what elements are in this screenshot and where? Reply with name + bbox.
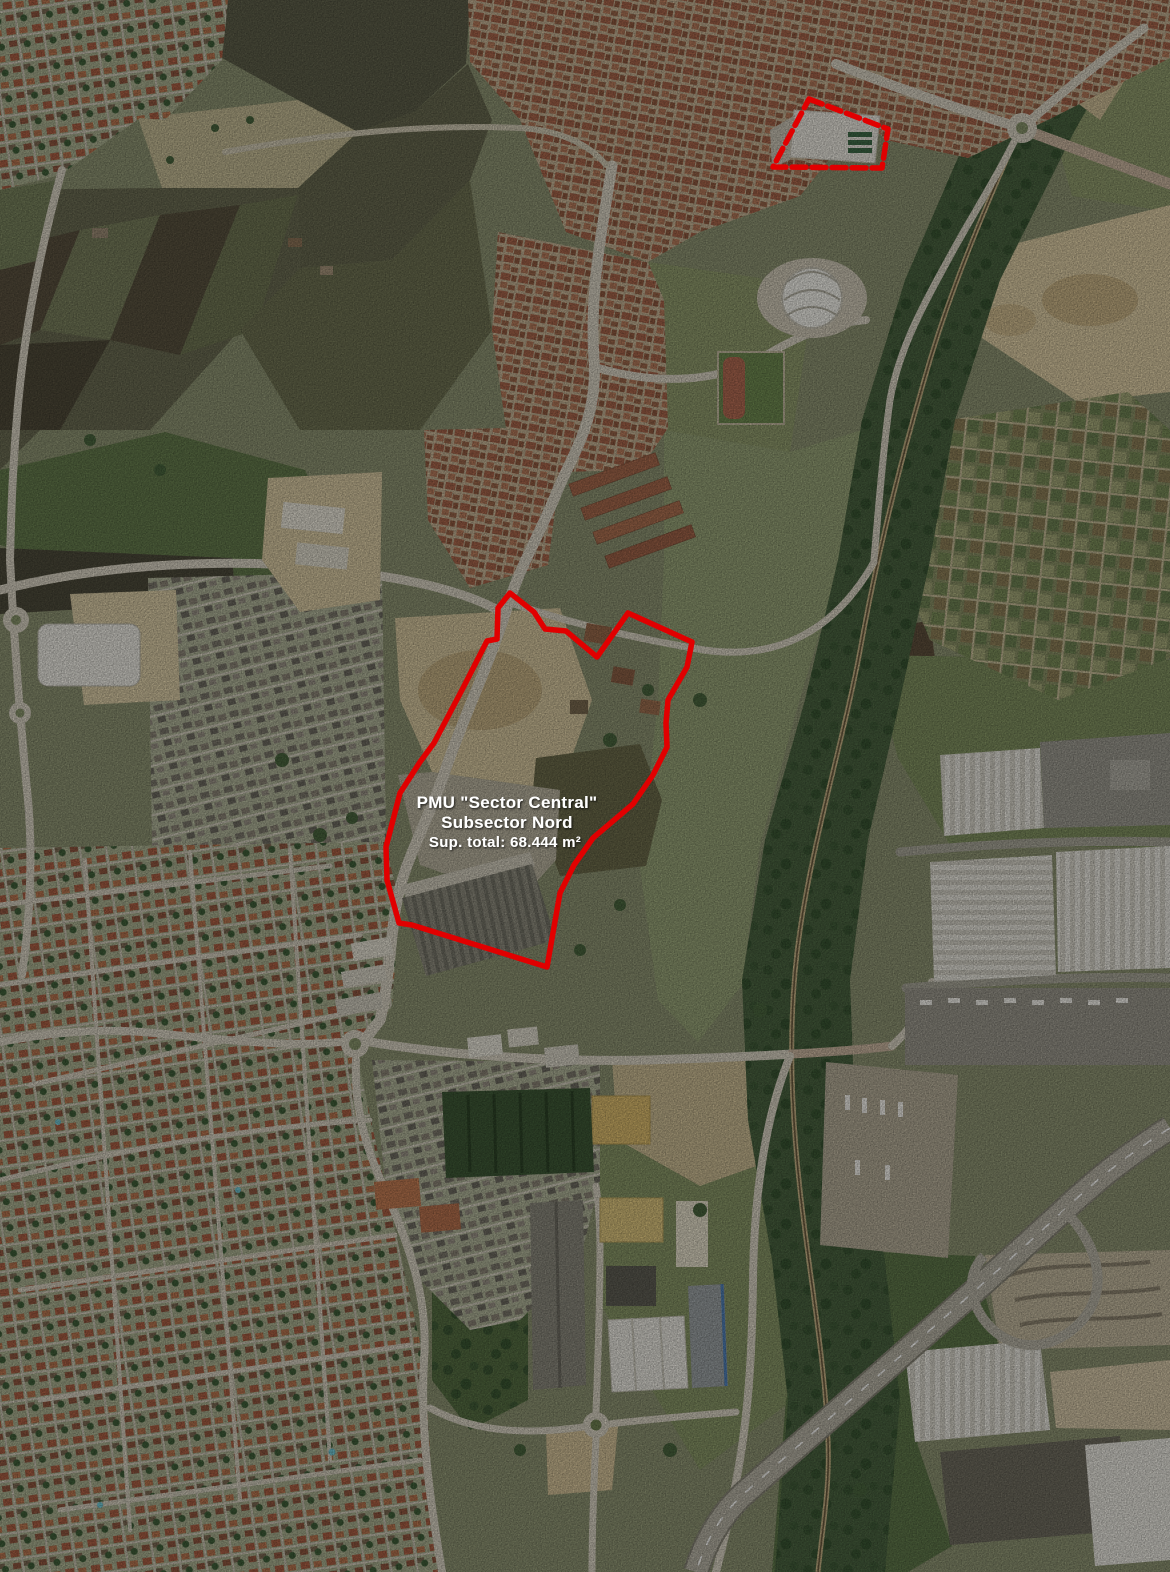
pmu-label-line1: PMU "Sector Central" [417,793,598,812]
photo-grain [0,0,1170,1572]
pmu-area-label: Sup. total: 68.444 m² [429,834,581,851]
aerial-planning-figure: PMU "Sector Central" Subsector Nord Sup.… [0,0,1170,1572]
pmu-label-line2: Subsector Nord [441,813,573,832]
pmu-label: PMU "Sector Central" Subsector Nord Sup.… [417,793,598,851]
orthophoto-canvas: PMU "Sector Central" Subsector Nord Sup.… [0,0,1170,1572]
